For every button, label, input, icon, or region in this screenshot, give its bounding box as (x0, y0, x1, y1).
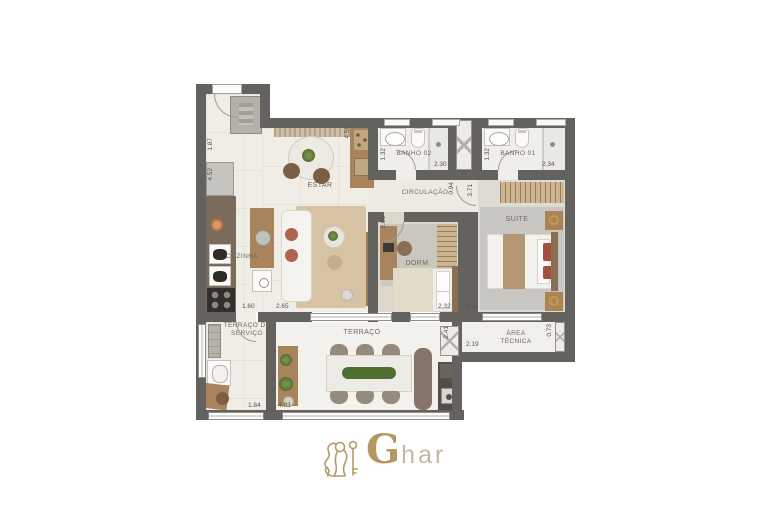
room-label-banho01: BANHO 01 (490, 150, 546, 158)
entry-door-leaf (212, 84, 242, 94)
dining-chair-1 (283, 163, 300, 179)
room-label-terraco-servico: TERRAÇO DE SERVIÇO (222, 322, 272, 338)
table-plant (302, 149, 315, 162)
gold-ring-decor (549, 215, 559, 225)
peninsula-sink (255, 230, 271, 246)
dorm-bed-blanket (393, 268, 433, 312)
dim-banho01-width: 2.34 (542, 161, 555, 168)
banho01-door-opening (498, 170, 518, 180)
gold-ring-decor (549, 296, 559, 306)
suite-nightstand-1 (545, 211, 563, 230)
banho01-sink (489, 132, 509, 146)
laptop (383, 243, 394, 252)
suite-window (482, 313, 542, 321)
room-label-suite: SUITE (492, 216, 542, 225)
dim-estar-depth: 4.58 (344, 126, 351, 139)
wall (462, 352, 575, 362)
terrace-bench (414, 348, 432, 410)
wall (472, 118, 482, 170)
dorm-door-opening (384, 212, 404, 222)
banho02-toilet (411, 128, 425, 148)
dim-dorm-width: 2.32 (438, 303, 451, 310)
coffee-table-plant (328, 231, 338, 241)
banho01-toilet (515, 128, 529, 148)
mirror-niche (384, 119, 410, 126)
table-runner (342, 367, 396, 379)
dim-area-tecnica-width: 2.19 (466, 341, 479, 348)
dishwasher-dial (259, 278, 269, 288)
suite-nightstand-2 (545, 292, 563, 311)
wall (368, 170, 396, 180)
dim-suite-depth: 3.71 (467, 184, 474, 197)
sofa-cushion-1 (285, 228, 298, 241)
cabinet-shelves (239, 103, 253, 125)
dim-terraco-width: 4.93 (278, 402, 291, 409)
dim-cozinha-width: 1.60 (242, 303, 255, 310)
suite-headboard (551, 232, 558, 291)
dim-left-lower: 4.52 (207, 168, 214, 181)
dim-estar-width: 2.65 (276, 303, 289, 310)
dim-banho01-depth: 1.32 (484, 148, 491, 161)
room-label-terraco: TERRAÇO (330, 329, 394, 338)
logo-text: har (401, 441, 446, 470)
banho02-sink (385, 132, 405, 146)
flower-decor (210, 218, 224, 232)
banho01-vanity (484, 128, 510, 146)
laundry-chair (216, 392, 229, 405)
dim-left-upper: 1.87 (207, 138, 214, 151)
dim-terraco-servico-width: 1.84 (248, 402, 261, 409)
dim-suite-width: 2.51 (466, 303, 479, 310)
toilet-tank (414, 130, 422, 133)
wall (416, 170, 498, 180)
shower-drain (436, 142, 441, 147)
banho02-door-opening (396, 170, 416, 180)
logo-initial: G (366, 430, 400, 470)
cooktop (207, 288, 235, 312)
shower-drain (550, 142, 555, 147)
floor-lamp (341, 289, 353, 301)
wall (565, 118, 575, 362)
sink-basin (213, 271, 227, 282)
dim-banho02-width: 2.30 (434, 161, 447, 168)
desk-chair (397, 241, 412, 256)
wall (518, 170, 575, 180)
duct-shaft (456, 120, 472, 170)
duct-shaft (555, 322, 565, 352)
dishwasher (252, 270, 272, 292)
wall (258, 312, 312, 322)
dim-area-tecnica-depth: 0.73 (546, 324, 553, 337)
service-railing (208, 412, 264, 420)
dim-dorm-depth: 2.66 (380, 216, 387, 229)
suite-wardrobe (500, 182, 564, 203)
shower-niche (432, 119, 460, 126)
wall (196, 312, 238, 322)
terrace-plant-1 (280, 354, 292, 366)
lion-key-icon (318, 435, 366, 483)
kitchen-sink-2 (209, 266, 231, 286)
dorm-window (410, 313, 440, 321)
wall (260, 118, 575, 128)
sliding-glass-door (310, 313, 392, 321)
terrace-plant-2 (279, 377, 293, 391)
banho02-vanity (380, 128, 406, 146)
mirror-niche (488, 119, 514, 126)
floor-plan-page: ESTAR COZINHA BANHO 02 BANHO 01 CIRCULAÇ… (0, 0, 768, 512)
room-label-area-tecnica: ÁREA TÉCNICA (492, 330, 540, 346)
shower-niche (536, 119, 566, 126)
pouf (327, 255, 342, 270)
wall (392, 312, 410, 322)
dim-banho02-depth: 1.32 (380, 148, 387, 161)
brand-logo: G har (318, 430, 508, 488)
tank-basin (212, 365, 228, 383)
terrace-railing (282, 412, 450, 420)
service-glass-door (198, 324, 206, 378)
sofa-cushion-2 (285, 249, 298, 262)
toilet-tank (518, 130, 526, 133)
dim-terraco-depth: 2.41 (443, 326, 450, 339)
laundry-tank (207, 360, 231, 386)
laundry-shelf (208, 324, 221, 358)
service-door-opening (236, 312, 256, 322)
suite-bed-throw (503, 234, 525, 289)
wall (368, 212, 378, 322)
dim-circulacao-depth: 0.94 (448, 182, 455, 195)
room-label-banho02: BANHO 02 (386, 150, 442, 158)
room-label-estar: ESTAR (290, 182, 350, 191)
room-label-cozinha: COZINHA (216, 253, 268, 261)
room-label-dorm: DORM (392, 260, 442, 269)
